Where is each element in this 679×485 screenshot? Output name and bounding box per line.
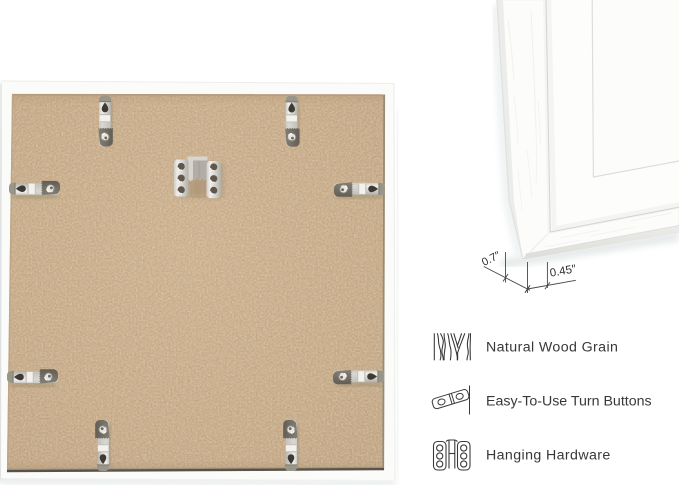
svg-text:Easy-To-Use Turn Buttons: Easy-To-Use Turn Buttons [486, 394, 652, 410]
svg-text:Natural Wood Grain: Natural Wood Grain [486, 340, 618, 356]
svg-text:Hanging Hardware: Hanging Hardware [486, 448, 611, 464]
